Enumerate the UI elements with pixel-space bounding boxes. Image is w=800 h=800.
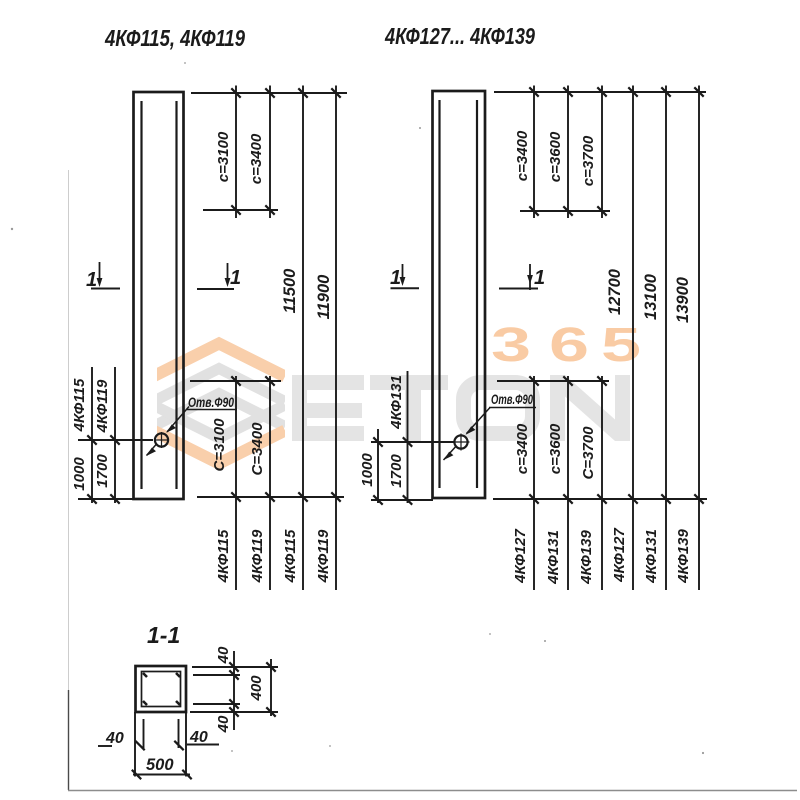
svg-text:1000: 1000: [71, 457, 88, 491]
svg-text:с=3600: с=3600: [547, 131, 564, 182]
svg-text:3: 3: [491, 318, 531, 371]
svg-text:4КФ139: 4КФ139: [675, 528, 692, 583]
svg-text:12700: 12700: [606, 268, 624, 315]
svg-text:5: 5: [601, 318, 641, 371]
svg-text:4КФ115: 4КФ115: [282, 529, 299, 583]
svg-text:4КФ131: 4КФ131: [545, 530, 562, 585]
svg-text:1: 1: [534, 267, 545, 289]
svg-text:1000: 1000: [359, 453, 376, 487]
svg-text:4КФ127: 4КФ127: [611, 527, 628, 582]
svg-text:1-1: 1-1: [147, 622, 180, 648]
svg-text:13900: 13900: [674, 276, 692, 323]
svg-text:400: 400: [248, 675, 265, 702]
svg-text:1: 1: [230, 267, 241, 289]
svg-text:с=3600: с=3600: [547, 423, 564, 474]
svg-text:40: 40: [215, 715, 232, 733]
svg-text:40: 40: [215, 646, 232, 664]
svg-text:С=3100: С=3100: [211, 418, 228, 472]
svg-text:4КФ115: 4КФ115: [215, 529, 232, 583]
svg-text:11500: 11500: [281, 268, 299, 313]
svg-text:4КФ131: 4КФ131: [643, 529, 660, 584]
svg-text:1: 1: [390, 267, 401, 289]
svg-text:4КФ119: 4КФ119: [94, 379, 111, 433]
svg-text:с=3400: с=3400: [514, 423, 531, 474]
svg-text:с=3400: с=3400: [514, 130, 531, 181]
svg-text:40: 40: [189, 729, 208, 746]
svg-text:11900: 11900: [315, 274, 333, 319]
svg-text:с=3100: с=3100: [215, 131, 232, 182]
svg-text:4КФ115, 4КФ119: 4КФ115, 4КФ119: [104, 25, 245, 51]
svg-text:Отв.Ф90: Отв.Ф90: [491, 392, 533, 407]
svg-text:4КФ127... 4КФ139: 4КФ127... 4КФ139: [384, 23, 535, 49]
svg-text:4КФ119: 4КФ119: [315, 529, 332, 583]
svg-text:1700: 1700: [388, 454, 405, 488]
svg-text:6: 6: [549, 318, 589, 371]
svg-text:С=3400: С=3400: [249, 422, 266, 476]
svg-text:с=3400: с=3400: [248, 133, 265, 184]
svg-text:4КФ139: 4КФ139: [578, 529, 595, 584]
svg-text:4КФ115: 4КФ115: [71, 378, 88, 432]
svg-text:4КФ119: 4КФ119: [249, 529, 266, 583]
svg-text:С=3700: С=3700: [580, 426, 597, 480]
svg-text:с=3700: с=3700: [580, 135, 597, 186]
svg-text:Отв.Ф90: Отв.Ф90: [188, 395, 234, 410]
svg-text:1700: 1700: [94, 454, 111, 488]
svg-text:40: 40: [105, 730, 124, 747]
svg-text:500: 500: [146, 756, 174, 774]
svg-text:4КФ127: 4КФ127: [512, 528, 529, 583]
svg-text:4КФ131: 4КФ131: [388, 375, 405, 430]
svg-text:13100: 13100: [642, 273, 660, 320]
